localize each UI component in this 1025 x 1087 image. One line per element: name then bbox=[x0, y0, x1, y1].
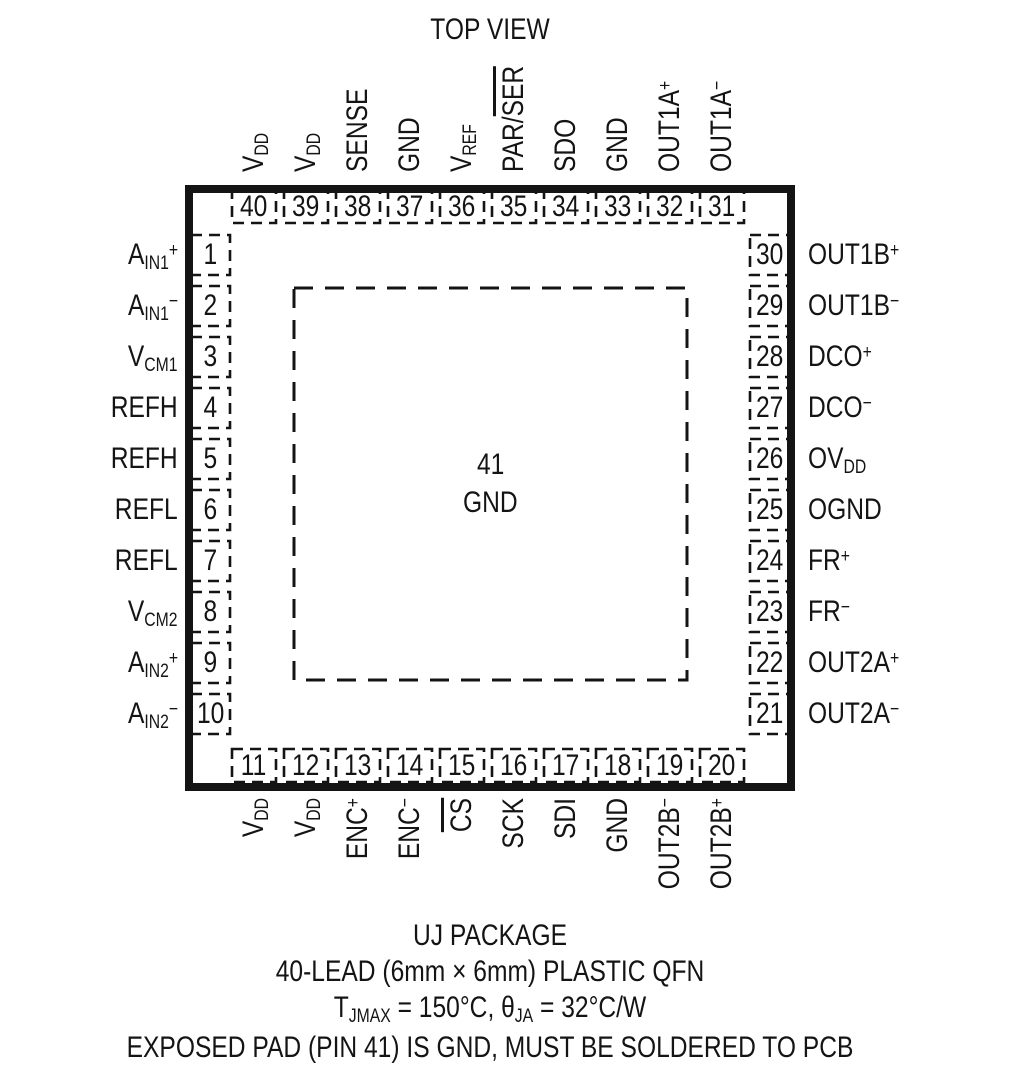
pin-label-14: ENC− bbox=[394, 798, 430, 873]
pin-label-text: OGND bbox=[808, 494, 882, 526]
label-text: DCO bbox=[808, 340, 863, 373]
pin-number-19: 19 bbox=[648, 749, 692, 782]
pin-label-text: OUT2A− bbox=[808, 698, 899, 734]
pin-number-text: 13 bbox=[344, 751, 371, 781]
label-text: SDI bbox=[549, 798, 582, 839]
pin-number-18: 18 bbox=[596, 749, 640, 782]
pin-label-text: VDD bbox=[238, 798, 274, 837]
pin-label-text: OUT1B+ bbox=[808, 239, 899, 275]
label-text: V bbox=[237, 156, 270, 172]
label-sup-text: − bbox=[890, 291, 899, 312]
pin-label-26: OVDD bbox=[808, 443, 879, 479]
pin-number-9: 9 bbox=[191, 643, 230, 683]
pin-number-text: 32 bbox=[656, 192, 683, 222]
pin-number-39: 39 bbox=[284, 191, 328, 223]
pin-number-23: 23 bbox=[750, 592, 789, 632]
pin-label-text: PAR/SER bbox=[498, 66, 530, 172]
pin-label-text: VCM1 bbox=[128, 341, 178, 377]
pin-label-32: OUT1A+ bbox=[654, 61, 690, 172]
pin-number-text: 39 bbox=[292, 192, 319, 222]
pin-number-text: 26 bbox=[756, 444, 783, 474]
pin-label-text: VDD bbox=[238, 133, 274, 172]
pin-label-38: SENSE bbox=[342, 70, 374, 172]
label-text: OUT1A bbox=[705, 90, 738, 172]
pin-number-text: 1 bbox=[204, 240, 218, 270]
center-pad-label: GND bbox=[463, 484, 518, 522]
pin-label-7: REFL bbox=[0, 545, 178, 577]
label-sup-text: − bbox=[863, 393, 872, 414]
pin-label-37: GND bbox=[394, 105, 426, 172]
pin-label-text: OUT1A+ bbox=[654, 81, 690, 172]
label-sup-text: − bbox=[395, 798, 416, 807]
label-sub-text: IN1 bbox=[144, 304, 168, 325]
label-sup-text: + bbox=[169, 648, 178, 669]
label-over-text: CS bbox=[441, 798, 478, 832]
pin-label-19: OUT2B− bbox=[654, 798, 690, 909]
pin-number-text: 6 bbox=[204, 495, 218, 525]
pin-number-text: 37 bbox=[396, 192, 423, 222]
label-text: DCO bbox=[808, 391, 863, 424]
pin-number-text: 21 bbox=[756, 699, 783, 729]
pin-number-text: 9 bbox=[204, 648, 218, 678]
label-text: GND bbox=[393, 117, 426, 172]
label-text: OUT1B bbox=[808, 289, 890, 322]
pin-number-35: 35 bbox=[492, 191, 536, 223]
label-text: V bbox=[445, 156, 478, 172]
label-text: REFL bbox=[115, 544, 178, 577]
pin-number-16: 16 bbox=[492, 749, 536, 782]
pin-label-15: CS bbox=[446, 798, 478, 840]
label-sup-text: − bbox=[841, 597, 850, 618]
pin-number-15: 15 bbox=[440, 749, 484, 782]
pin-label-34: SDO bbox=[550, 107, 582, 172]
pin-number-text: 33 bbox=[604, 192, 631, 222]
label-text: = 32°C/W bbox=[533, 991, 646, 1024]
pin-number-24: 24 bbox=[750, 541, 789, 581]
pin-label-text: SENSE bbox=[342, 89, 374, 172]
pin-label-text: SCK bbox=[498, 798, 530, 849]
label-text: REFL bbox=[115, 493, 178, 526]
pin-label-text: DCO− bbox=[808, 392, 872, 428]
pin-number-10: 10 bbox=[191, 694, 230, 734]
label-text: PAR/ bbox=[497, 116, 530, 172]
package-description-line: 40-LEAD (6mm × 6mm) PLASTIC QFN bbox=[88, 954, 892, 990]
pin-label-1: AIN1+ bbox=[0, 239, 178, 275]
pin-number-text: 35 bbox=[500, 192, 527, 222]
label-text: SCK bbox=[497, 798, 530, 849]
label-sup-text: + bbox=[890, 648, 899, 669]
pin-number-22: 22 bbox=[750, 643, 789, 683]
pin-label-text: OUT2B+ bbox=[706, 798, 742, 889]
pin-number-12: 12 bbox=[284, 749, 328, 782]
label-text: SDO bbox=[549, 119, 582, 172]
pin-number-27: 27 bbox=[750, 388, 789, 428]
label-text: OUT2A bbox=[808, 646, 890, 679]
pin-label-text: ENC− bbox=[394, 798, 430, 859]
pin-label-text: VDD bbox=[290, 133, 326, 172]
thermal-spec-line: TJMAX = 150°C, θJA = 32°C/W bbox=[88, 990, 892, 1030]
pin-number-37: 37 bbox=[388, 191, 432, 223]
pin-number-34: 34 bbox=[544, 191, 588, 223]
pin-number-text: 7 bbox=[204, 546, 218, 576]
pin-label-17: SDI bbox=[550, 798, 582, 848]
pin-number-40: 40 bbox=[232, 191, 276, 223]
pin-number-text: 40 bbox=[240, 192, 267, 222]
pin-number-26: 26 bbox=[750, 439, 789, 479]
pin-label-40: VDD bbox=[238, 124, 274, 172]
label-text: OUT2B bbox=[705, 807, 738, 889]
label-text: FR bbox=[808, 595, 841, 628]
label-text: GND bbox=[601, 798, 634, 853]
pin-number-25: 25 bbox=[750, 490, 789, 530]
label-text: OGND bbox=[808, 493, 882, 526]
pin-label-21: OUT2A− bbox=[808, 698, 919, 734]
label-text: ENC bbox=[341, 807, 374, 859]
pin-number-21: 21 bbox=[750, 694, 789, 734]
label-text: V bbox=[128, 340, 144, 373]
pin-number-text: 25 bbox=[756, 495, 783, 525]
pin-label-24: FR+ bbox=[808, 545, 859, 581]
pin-label-28: DCO+ bbox=[808, 341, 886, 377]
pin-label-22: OUT2A+ bbox=[808, 647, 919, 683]
pin-number-text: 11 bbox=[241, 751, 267, 781]
pin-label-12: VDD bbox=[290, 798, 326, 846]
pin-number-3: 3 bbox=[191, 337, 230, 377]
pin-number-text: 5 bbox=[204, 444, 218, 474]
pin-label-5: REFH bbox=[0, 443, 178, 475]
pin-label-39: VDD bbox=[290, 124, 326, 172]
label-text: V bbox=[289, 156, 322, 172]
label-sub-text: CM2 bbox=[145, 610, 178, 631]
pin-label-text: OUT2B− bbox=[654, 798, 690, 889]
label-text: A bbox=[128, 238, 144, 271]
pin-label-4: REFH bbox=[0, 392, 178, 424]
label-sub-text: REF bbox=[460, 124, 481, 155]
label-sup-text: − bbox=[890, 699, 899, 720]
label-text: REFH bbox=[111, 391, 178, 424]
pin-label-text: REFL bbox=[115, 494, 178, 526]
pin-label-text: REFL bbox=[115, 545, 178, 577]
pin-number-text: 30 bbox=[756, 240, 783, 270]
label-sup-text: + bbox=[890, 240, 899, 261]
label-text: EXPOSED PAD (PIN 41) IS GND, MUST BE SOL… bbox=[127, 1031, 854, 1064]
label-sub-text: JMAX bbox=[349, 1006, 391, 1027]
pin-label-text: OUT1A− bbox=[706, 81, 742, 172]
pin-label-2: AIN1− bbox=[0, 290, 178, 326]
pin-label-16: SCK bbox=[498, 798, 530, 860]
pin-number-11: 11 bbox=[232, 749, 276, 782]
pin-label-text: REFH bbox=[111, 392, 178, 424]
exposed-pad-note-line: EXPOSED PAD (PIN 41) IS GND, MUST BE SOL… bbox=[88, 1030, 892, 1066]
pin-number-32: 32 bbox=[648, 191, 692, 223]
pin-label-text: ENC+ bbox=[342, 798, 378, 859]
label-text: REFH bbox=[111, 442, 178, 475]
pin-number-20: 20 bbox=[700, 749, 744, 782]
pin-number-text: 8 bbox=[204, 597, 218, 627]
pin-number-text: 36 bbox=[448, 192, 475, 222]
label-sub-text: IN2 bbox=[144, 712, 168, 733]
label-sup-text: + bbox=[707, 798, 728, 807]
label-sup-text: − bbox=[655, 798, 676, 807]
label-text: OV bbox=[808, 442, 844, 475]
pin-label-text: VCM2 bbox=[128, 596, 178, 632]
label-text: OUT1A bbox=[653, 90, 686, 172]
label-text: A bbox=[128, 646, 144, 679]
pin-number-4: 4 bbox=[191, 388, 230, 428]
label-sup-text: + bbox=[863, 342, 872, 363]
label-text: OUT2A bbox=[808, 697, 890, 730]
label-text: V bbox=[289, 821, 322, 837]
pin-number-8: 8 bbox=[191, 592, 230, 632]
pin-number-text: 22 bbox=[756, 648, 783, 678]
label-sub-text: DD bbox=[252, 798, 273, 821]
label-sup-text: − bbox=[169, 699, 178, 720]
pin-label-text: AIN1+ bbox=[128, 239, 178, 275]
label-text: A bbox=[128, 289, 144, 322]
pin-number-text: 31 bbox=[708, 192, 735, 222]
pin-label-9: AIN2+ bbox=[0, 647, 178, 683]
pin-number-29: 29 bbox=[750, 286, 789, 326]
label-sub-text: DD bbox=[304, 133, 325, 156]
pin-label-text: OVDD bbox=[808, 443, 866, 479]
pin-label-text: AIN1− bbox=[128, 290, 178, 326]
pin-number-text: 16 bbox=[500, 751, 527, 781]
pin-number-17: 17 bbox=[544, 749, 588, 782]
pin-label-27: DCO− bbox=[808, 392, 886, 428]
label-text: OUT1B bbox=[808, 238, 890, 271]
pin-label-text: AIN2− bbox=[128, 698, 178, 734]
pin-number-text: 15 bbox=[448, 751, 475, 781]
pin-label-text: SDO bbox=[550, 119, 582, 172]
pin-number-text: 20 bbox=[708, 751, 735, 781]
pin-label-36: VREF bbox=[446, 114, 482, 172]
pin-label-20: OUT2B+ bbox=[706, 798, 742, 909]
pin-number-text: 12 bbox=[292, 751, 319, 781]
pin-number-text: 19 bbox=[656, 751, 683, 781]
pin-number-33: 33 bbox=[596, 191, 640, 223]
pin-label-33: GND bbox=[602, 105, 634, 172]
label-text: T bbox=[334, 991, 349, 1024]
pin-label-10: AIN2− bbox=[0, 698, 178, 734]
pin-number-1: 1 bbox=[191, 235, 230, 275]
pin-label-25: OGND bbox=[808, 494, 898, 526]
label-text: UJ PACKAGE bbox=[413, 919, 567, 952]
label-sub-text: DD bbox=[304, 798, 325, 821]
pin-label-6: REFL bbox=[0, 494, 178, 526]
package-notes: UJ PACKAGE 40-LEAD (6mm × 6mm) PLASTIC Q… bbox=[0, 918, 980, 1066]
label-text: FR bbox=[808, 544, 841, 577]
pin-label-text: DCO+ bbox=[808, 341, 872, 377]
label-sup-text: − bbox=[707, 81, 728, 90]
pin-label-23: FR− bbox=[808, 596, 859, 632]
pin-label-text: AIN2+ bbox=[128, 647, 178, 683]
pin-number-text: 28 bbox=[756, 342, 783, 372]
label-text: V bbox=[237, 821, 270, 837]
pin-label-text: GND bbox=[602, 798, 634, 853]
pin-number-13: 13 bbox=[336, 749, 380, 782]
label-text: GND bbox=[601, 117, 634, 172]
label-sub-text: CM1 bbox=[145, 355, 178, 376]
pin-number-5: 5 bbox=[191, 439, 230, 479]
pin-label-text: OUT2A+ bbox=[808, 647, 899, 683]
pin-number-7: 7 bbox=[191, 541, 230, 581]
label-over-text: SER bbox=[493, 66, 530, 117]
pin-label-8: VCM2 bbox=[0, 596, 178, 632]
pin-number-text: 2 bbox=[204, 291, 218, 321]
pin-number-2: 2 bbox=[191, 286, 230, 326]
center-pad: 41 GND bbox=[294, 288, 687, 680]
pin-label-text: FR+ bbox=[808, 545, 850, 581]
pin-number-text: 29 bbox=[756, 291, 783, 321]
pin-number-36: 36 bbox=[440, 191, 484, 223]
pin-label-text: VDD bbox=[290, 798, 326, 837]
qfn-pinout-diagram: TOP VIEW 40VDD39VDD38SENSE37GND36VREF35P… bbox=[0, 0, 1025, 1087]
label-sup-text: + bbox=[655, 81, 676, 90]
pin-number-text: 17 bbox=[552, 751, 579, 781]
pin-label-11: VDD bbox=[238, 798, 274, 846]
label-sub-text: DD bbox=[252, 133, 273, 156]
label-text: V bbox=[128, 595, 144, 628]
pin-number-30: 30 bbox=[750, 235, 789, 275]
pin-number-text: 24 bbox=[756, 546, 783, 576]
label-sup-text: + bbox=[841, 546, 850, 567]
label-text: OUT2B bbox=[653, 807, 686, 889]
label-text: SENSE bbox=[341, 89, 374, 172]
label-sup-text: − bbox=[169, 291, 178, 312]
pin-label-text: FR− bbox=[808, 596, 850, 632]
pin-number-28: 28 bbox=[750, 337, 789, 377]
label-sub-text: DD bbox=[844, 457, 867, 478]
pin-number-text: 4 bbox=[204, 393, 218, 423]
pin-number-38: 38 bbox=[336, 191, 380, 223]
pin-label-35: PAR/SER bbox=[498, 43, 530, 172]
label-text: 40-LEAD (6mm × 6mm) PLASTIC QFN bbox=[276, 955, 705, 988]
package-code-line: UJ PACKAGE bbox=[88, 918, 892, 954]
pin-number-text: 34 bbox=[552, 192, 579, 222]
pin-label-text: CS bbox=[446, 798, 478, 832]
pin-label-text: SDI bbox=[550, 798, 582, 839]
label-sup-text: + bbox=[343, 798, 364, 807]
pin-label-text: OUT1B− bbox=[808, 290, 899, 326]
pin-label-31: OUT1A− bbox=[706, 61, 742, 172]
pin-label-13: ENC+ bbox=[342, 798, 378, 873]
pin-number-text: 10 bbox=[197, 699, 224, 729]
pin-number-text: 14 bbox=[396, 751, 423, 781]
pin-number-text: 38 bbox=[344, 192, 371, 222]
pin-number-14: 14 bbox=[388, 749, 432, 782]
label-sup-text: + bbox=[169, 240, 178, 261]
pin-label-18: GND bbox=[602, 798, 634, 865]
pin-label-29: OUT1B− bbox=[808, 290, 919, 326]
pin-number-6: 6 bbox=[191, 490, 230, 530]
label-sub-text: IN1 bbox=[144, 253, 168, 274]
center-pad-number: 41 bbox=[477, 446, 504, 484]
pin-label-text: REFH bbox=[111, 443, 178, 475]
label-sub-text: IN2 bbox=[144, 661, 168, 682]
pin-number-text: 3 bbox=[204, 342, 218, 372]
label-text: ENC bbox=[393, 807, 426, 859]
pin-number-text: 18 bbox=[604, 751, 631, 781]
pin-label-30: OUT1B+ bbox=[808, 239, 919, 275]
label-text: A bbox=[128, 697, 144, 730]
pin-label-text: GND bbox=[602, 117, 634, 172]
label-text: = 150°C, θ bbox=[391, 991, 515, 1024]
pin-label-text: VREF bbox=[446, 124, 482, 172]
pin-label-text: GND bbox=[394, 117, 426, 172]
label-sub-text: JA bbox=[515, 1006, 533, 1027]
pin-number-text: 27 bbox=[756, 393, 783, 423]
pin-number-31: 31 bbox=[700, 191, 744, 223]
pin-label-3: VCM1 bbox=[0, 341, 178, 377]
pin-number-text: 23 bbox=[756, 597, 783, 627]
